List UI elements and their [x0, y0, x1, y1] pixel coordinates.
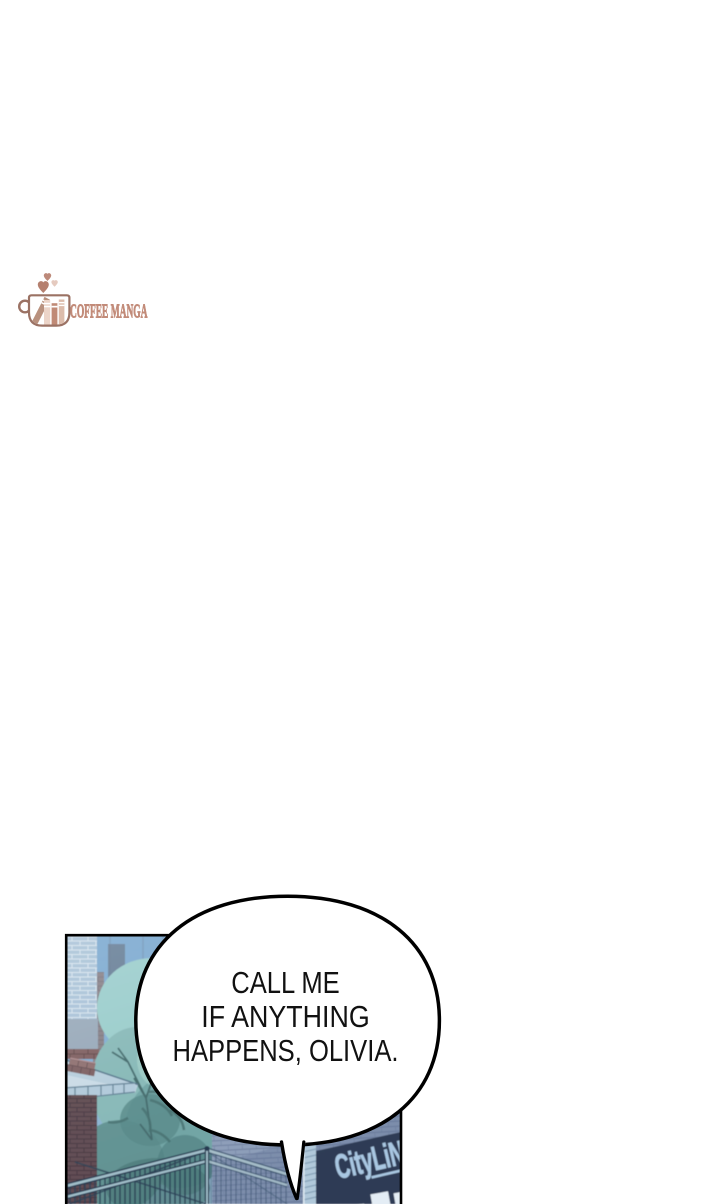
svg-text:HAPPENS, OLIVIA.: HAPPENS, OLIVIA. [173, 1033, 399, 1068]
svg-text:IF ANYTHING: IF ANYTHING [201, 999, 370, 1034]
svg-text:CALL ME: CALL ME [231, 965, 340, 1000]
svg-text:COFFEE MANGA: COFFEE MANGA [70, 301, 148, 323]
